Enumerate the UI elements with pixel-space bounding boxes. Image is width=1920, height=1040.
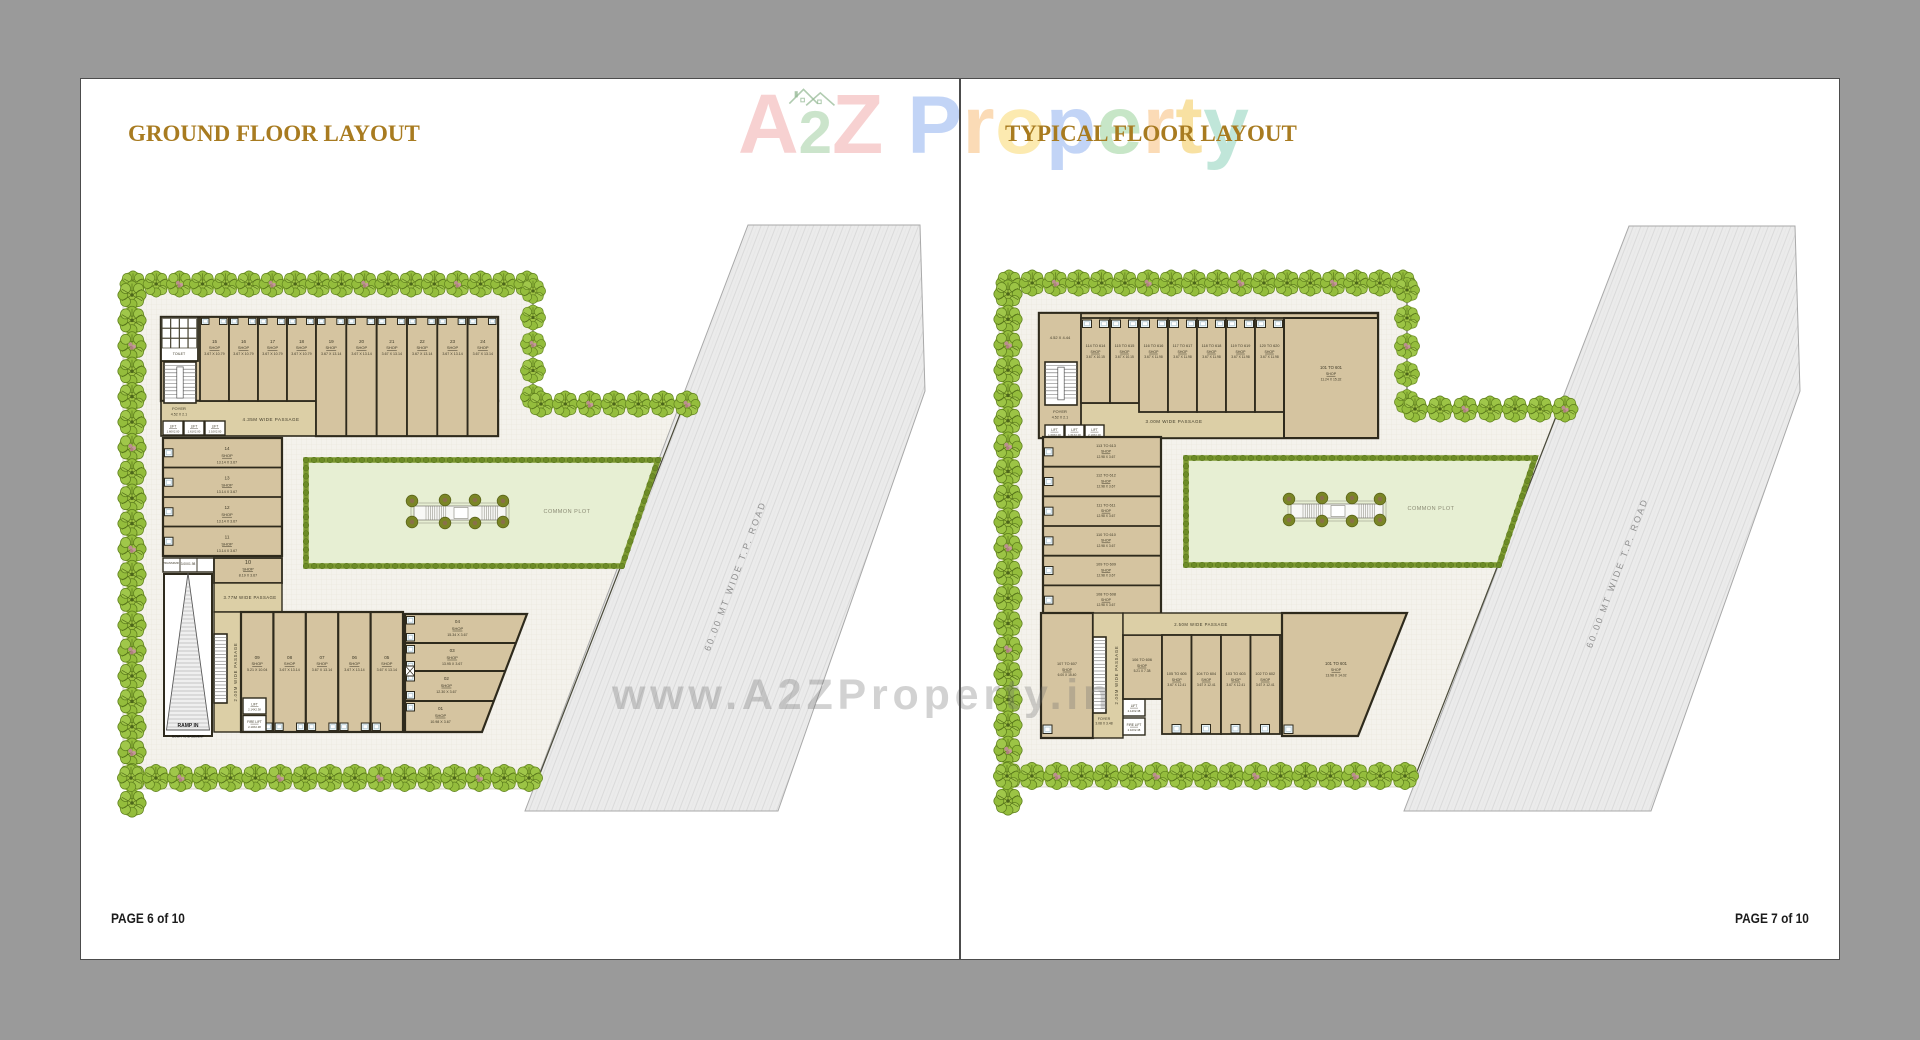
svg-text:3.08 X 3.48: 3.08 X 3.48 [1095,722,1112,726]
svg-text:SHOP: SHOP [1231,678,1242,682]
svg-text:3.67 X 12.41: 3.67 X 12.41 [1197,683,1216,687]
svg-text:SHOP: SHOP [221,483,233,488]
svg-text:SHOP: SHOP [435,713,447,718]
svg-text:3.67 X 10.79: 3.67 X 10.79 [291,352,311,356]
svg-text:4.52 X 2.1: 4.52 X 2.1 [171,413,187,417]
svg-text:SHOP: SHOP [221,453,233,458]
svg-text:07: 07 [319,655,325,660]
svg-text:05: 05 [384,655,390,660]
svg-text:5.21 X 7.38: 5.21 X 7.38 [1134,669,1151,673]
svg-text:SHOP: SHOP [326,345,338,350]
svg-text:120 TO 620: 120 TO 620 [1260,344,1280,348]
svg-text:3.67 X 13.14: 3.67 X 13.14 [377,668,397,672]
svg-text:COMMON PLOT: COMMON PLOT [543,509,590,515]
svg-text:TRANSFMR: TRANSFMR [163,561,179,565]
svg-text:3.67 X 11.98: 3.67 X 11.98 [1202,355,1221,359]
svg-text:SHOP: SHOP [1265,350,1276,354]
svg-text:SHOP: SHOP [447,345,459,350]
svg-text:108 TO 608: 108 TO 608 [1096,592,1116,596]
svg-text:2.50M WIDE PASSAGE: 2.50M WIDE PASSAGE [1174,622,1228,627]
svg-text:13: 13 [224,476,230,481]
svg-text:SHOP: SHOP [221,542,233,547]
svg-text:3.67 X 11.98: 3.67 X 11.98 [1144,355,1163,359]
svg-text:LIFT: LIFT [212,425,219,429]
svg-text:15: 15 [212,339,218,344]
svg-text:101 TO 601: 101 TO 601 [1325,661,1348,666]
svg-text:FOYER: FOYER [1053,409,1067,414]
svg-text:104 TO 604: 104 TO 604 [1196,672,1216,676]
svg-text:RAMP IN: RAMP IN [177,723,198,729]
svg-text:04: 04 [455,619,461,624]
svg-text:4.35M WIDE PASSAGE: 4.35M WIDE PASSAGE [243,417,300,422]
svg-text:SHOP: SHOP [1149,350,1160,354]
svg-text:13.14 X 3.67: 13.14 X 3.67 [217,549,237,553]
svg-text:SHOP: SHOP [242,566,254,571]
svg-text:SHOP: SHOP [349,661,361,666]
svg-text:113 TO 613: 113 TO 613 [1096,444,1116,448]
svg-text:4.52 X 4.44: 4.52 X 4.44 [1050,335,1071,340]
svg-text:12.98 X 3.67: 12.98 X 3.67 [1097,514,1116,518]
svg-text:3.67 X 13.14: 3.67 X 13.14 [442,352,462,356]
svg-text:SHOP: SHOP [386,345,398,350]
svg-text:3.67 X 10.79: 3.67 X 10.79 [204,352,224,356]
svg-text:3.67 X 11.98: 3.67 X 11.98 [1260,355,1279,359]
svg-text:3.00X1.98: 3.00X1.98 [181,562,196,566]
svg-text:SHOP: SHOP [417,345,429,350]
svg-text:12.98 X 3.67: 12.98 X 3.67 [1097,603,1116,607]
svg-text:FIRE LIFT: FIRE LIFT [1127,723,1142,727]
svg-text:09: 09 [255,655,261,660]
svg-text:SHOP: SHOP [238,345,250,350]
svg-text:11.24 X 15.32: 11.24 X 15.32 [1321,378,1342,382]
svg-text:SHOP: SHOP [1101,479,1112,483]
svg-text:103 TO 603: 103 TO 603 [1226,672,1246,676]
svg-text:3.00M WIDE PASSAGE: 3.00M WIDE PASSAGE [1146,419,1203,424]
svg-text:3.67 X 12.41: 3.67 X 12.41 [1167,683,1186,687]
svg-text:3.67 X 11.98: 3.67 X 11.98 [1173,355,1192,359]
svg-text:13.98 X 14.02: 13.98 X 14.02 [1325,674,1346,678]
svg-text:LIFT: LIFT [251,703,258,707]
svg-text:TOILET: TOILET [173,352,186,356]
svg-text:12: 12 [224,505,230,510]
svg-text:3.67 X 13.14: 3.67 X 13.14 [473,352,493,356]
svg-text:11: 11 [225,535,230,540]
svg-text:10: 10 [245,560,251,566]
svg-text:SHOP: SHOP [209,345,221,350]
svg-text:FOYER: FOYER [172,406,186,411]
svg-text:115 TO 615: 115 TO 615 [1115,344,1135,348]
svg-text:117 TO 617: 117 TO 617 [1173,344,1193,348]
svg-text:118 TO 618: 118 TO 618 [1202,344,1222,348]
svg-text:12.98 X 3.67: 12.98 X 3.67 [1097,573,1116,577]
svg-text:14: 14 [224,446,230,451]
svg-text:08: 08 [287,655,293,660]
svg-text:2.10X2.00: 2.10X2.00 [209,429,222,433]
svg-text:02: 02 [444,676,450,681]
svg-text:111 TO 611: 111 TO 611 [1096,503,1115,507]
svg-text:1.60X2.00: 1.60X2.00 [167,429,180,433]
svg-text:3.67 X 11.98: 3.67 X 11.98 [1231,355,1250,359]
svg-text:102 TO 602: 102 TO 602 [1255,672,1275,676]
svg-text:2.14X2.38: 2.14X2.38 [1128,709,1141,713]
svg-text:SHOP: SHOP [1331,668,1342,672]
svg-text:3.67 X 10.15: 3.67 X 10.15 [1115,355,1134,359]
svg-text:2.10X2.38: 2.10X2.38 [248,725,261,729]
svg-text:LIFT: LIFT [1091,428,1098,432]
svg-text:SHOP: SHOP [221,512,233,517]
svg-text:SHOP: SHOP [446,655,458,660]
svg-text:SHOP: SHOP [252,661,264,666]
svg-text:SHOP: SHOP [381,661,393,666]
svg-text:24: 24 [480,339,486,344]
svg-text:3.67 X 13.14: 3.67 X 13.14 [344,668,364,672]
svg-text:LIFT: LIFT [1051,428,1058,432]
svg-text:SHOP: SHOP [1326,372,1337,376]
svg-text:SHOP: SHOP [267,345,279,350]
svg-text:110 TO 610: 110 TO 610 [1096,533,1116,537]
svg-text:3.67 X 13.14: 3.67 X 13.14 [312,668,332,672]
svg-text:12.98 X 3.67: 12.98 X 3.67 [1097,484,1116,488]
svg-text:COMMON PLOT: COMMON PLOT [1407,506,1454,512]
svg-text:3.67 X 10.79: 3.67 X 10.79 [262,352,282,356]
svg-text:114 TO 614: 114 TO 614 [1086,344,1106,348]
svg-text:107 TO 607: 107 TO 607 [1057,662,1077,666]
svg-text:SHOP: SHOP [1178,350,1189,354]
svg-text:12.30 X 3.67: 12.30 X 3.67 [436,690,456,694]
svg-text:22: 22 [420,339,426,344]
svg-text:10.98 X 3.67: 10.98 X 3.67 [430,720,450,724]
svg-text:01: 01 [438,706,444,711]
svg-text:SHOP: SHOP [1236,350,1247,354]
svg-text:SHOP: SHOP [1137,664,1148,668]
svg-text:SHOP: SHOP [1207,350,1218,354]
svg-text:3.67 X 10.79: 3.67 X 10.79 [233,352,253,356]
svg-text:2.10X2.38: 2.10X2.38 [1128,728,1141,732]
svg-text:SHOP: SHOP [1101,568,1112,572]
svg-text:109 TO 609: 109 TO 609 [1096,563,1116,567]
svg-text:119 TO 619: 119 TO 619 [1231,344,1251,348]
svg-text:SHOP: SHOP [1101,539,1112,543]
svg-text:SHOP: SHOP [284,661,296,666]
svg-text:1.61X2.00: 1.61X2.00 [188,429,201,433]
svg-text:3.77M WIDE PASSAGE: 3.77M WIDE PASSAGE [224,595,277,600]
svg-text:101 TO 601: 101 TO 601 [1320,365,1343,370]
svg-text:SHOP: SHOP [477,345,489,350]
svg-text:8.19 X 3.67: 8.19 X 3.67 [239,573,257,577]
svg-text:19: 19 [329,339,335,344]
svg-text:FIRE LIFT: FIRE LIFT [247,720,262,724]
svg-text:112 TO 612: 112 TO 612 [1096,474,1116,478]
svg-text:4.52 X 2.1: 4.52 X 2.1 [1052,416,1068,420]
svg-text:SHOP: SHOP [1101,509,1112,513]
svg-text:SHOP: SHOP [452,626,464,631]
svg-text:SHOP: SHOP [1101,598,1112,602]
svg-text:105 TO 605: 105 TO 605 [1167,672,1187,676]
svg-text:SHOP: SHOP [1201,678,1212,682]
svg-text:SHOP: SHOP [441,683,453,688]
svg-text:03: 03 [450,648,456,653]
svg-text:06: 06 [352,655,358,660]
svg-text:16: 16 [241,339,247,344]
svg-text:5.21 X 10.04: 5.21 X 10.04 [247,668,267,672]
svg-text:18: 18 [299,339,305,344]
svg-text:3.67 X 12.41: 3.67 X 12.41 [1256,683,1275,687]
svg-text:12.98 X 3.67: 12.98 X 3.67 [1097,544,1116,548]
svg-text:3.67 X 13.14: 3.67 X 13.14 [382,352,402,356]
svg-text:3.67 X 13.14: 3.67 X 13.14 [321,352,341,356]
svg-text:12.98 X 3.67: 12.98 X 3.67 [1097,455,1116,459]
svg-text:LIFT: LIFT [1131,704,1138,708]
svg-text:SHOP: SHOP [1172,678,1183,682]
svg-text:LIFT: LIFT [170,425,177,429]
svg-text:SHOP: SHOP [1120,350,1131,354]
svg-text:3.67 X 10.15: 3.67 X 10.15 [1086,355,1105,359]
svg-text:116 TO 616: 116 TO 616 [1144,344,1164,348]
svg-text:2.14X2.38: 2.14X2.38 [248,707,261,711]
svg-text:SHOP: SHOP [1260,678,1271,682]
svg-text:21: 21 [389,339,395,344]
svg-text:13.14 X 3.67: 13.14 X 3.67 [217,520,237,524]
svg-text:SHOP: SHOP [1101,450,1112,454]
svg-text:SHOP: SHOP [316,661,328,666]
svg-text:23: 23 [450,339,456,344]
svg-text:3.67 X 13.14: 3.67 X 13.14 [351,352,371,356]
svg-text:2.00M WIDE PASSAGE: 2.00M WIDE PASSAGE [1114,645,1119,704]
svg-text:17: 17 [270,339,276,344]
svg-text:DOWN TO BASEMENT: DOWN TO BASEMENT [172,735,204,739]
svg-text:LIFT: LIFT [1071,428,1078,432]
svg-text:SHOP: SHOP [296,345,308,350]
svg-text:SHOP: SHOP [356,345,368,350]
svg-text:20: 20 [359,339,365,344]
svg-text:SHOP: SHOP [1091,350,1102,354]
svg-text:13.95 X 3.67: 13.95 X 3.67 [442,662,462,666]
svg-text:3.67 X 13.14: 3.67 X 13.14 [412,352,432,356]
svg-text:3.67 X 13.14: 3.67 X 13.14 [279,668,299,672]
svg-text:13.14 X 3.67: 13.14 X 3.67 [217,461,237,465]
svg-text:15.34 X 3.67: 15.34 X 3.67 [447,633,467,637]
svg-text:2.00M WIDE PASSAGE: 2.00M WIDE PASSAGE [233,642,238,701]
svg-text:13.14 X 3.67: 13.14 X 3.67 [217,490,237,494]
svg-text:106 TO 606: 106 TO 606 [1132,658,1152,662]
svg-text:3.67 X 12.41: 3.67 X 12.41 [1226,683,1245,687]
svg-text:LIFT: LIFT [191,425,198,429]
